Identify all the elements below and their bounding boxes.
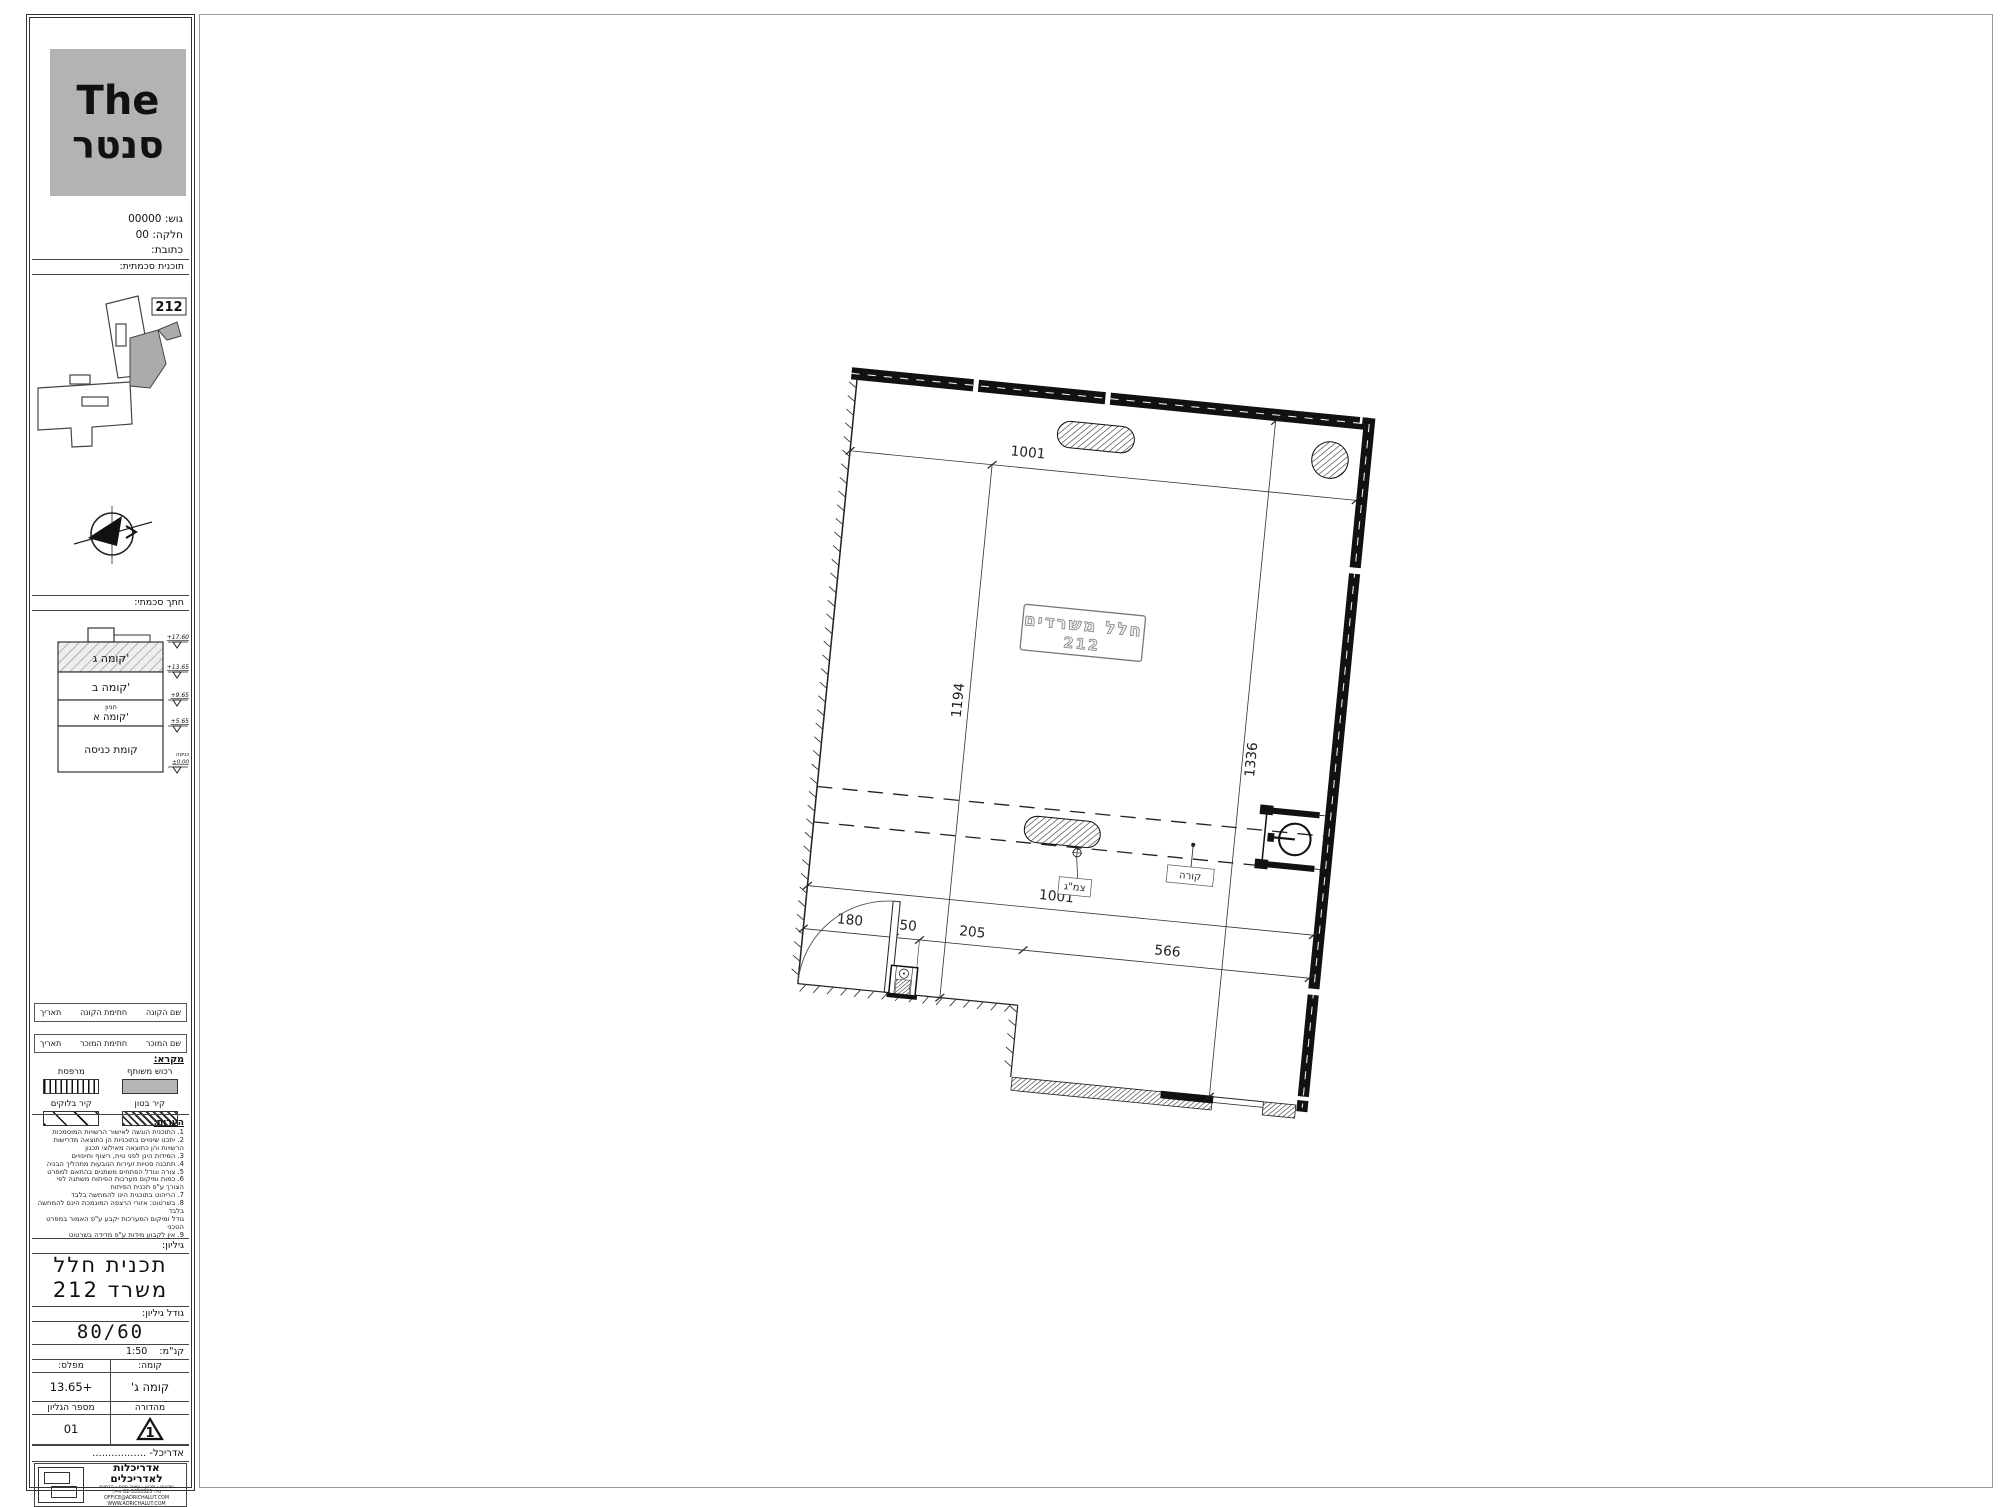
revision-value-row: 1 01 (32, 1414, 189, 1445)
notes-list: 1. התוכנית הוגשה לאישור הרשויות המוסמכות… (33, 1129, 184, 1248)
block-label: גוש: 00000 (30, 212, 183, 228)
level-label: מפלס: (32, 1360, 111, 1372)
keyplan-unit-label: 212 (155, 300, 182, 315)
architect-label: אדריכל- (149, 1448, 184, 1459)
shared-property-swatch (122, 1079, 178, 1094)
floor-level-header-row: קומה: מפלס: (32, 1359, 189, 1373)
sheet-no-label: מספר הגליון (32, 1402, 111, 1414)
buyer-signature-row: שם הקונה חתימת הקונה תאריך (34, 1003, 187, 1022)
floor-plan: חלל משרדים 212 1001 1001 1194 1336 180 5… (0, 0, 2000, 1500)
beam-leader: קורה (1166, 840, 1217, 886)
top-dim-line (850, 451, 1356, 501)
partition-line (940, 465, 992, 998)
entry-floor-label: קומת כניסה (84, 744, 137, 756)
project-logo: The סנטר (50, 49, 186, 196)
firm-name: אדריכלות לאדריכלים (87, 1463, 186, 1485)
logo-line2: סנטר (72, 123, 164, 167)
dim-shaft: 50 (899, 917, 918, 935)
entry-level-label: כניסה (175, 752, 189, 758)
legend-item-shared: רכוש משותף (115, 1067, 186, 1094)
beam-hatch-mid (1023, 815, 1101, 849)
sheet-no-value: 01 (32, 1414, 111, 1444)
elevation-markers: +17.60 +13.65 +9.65 +5.65 כניסה ±0.00 (167, 634, 190, 773)
room-number: 212 (1063, 634, 1101, 655)
legend-label: רכוש משותף (115, 1067, 186, 1077)
sheet-title-line1: תכנית חלל (30, 1253, 191, 1278)
wheelchair-icon (1254, 804, 1325, 874)
door (798, 893, 900, 993)
floor-value: קומה ג' (111, 1372, 189, 1401)
dim-205: 205 (959, 923, 987, 941)
note-line: 8. בשרטוט: אזורי הרצפה המונמכת הינם להמח… (33, 1200, 184, 1216)
sheet-title: תכנית חלל משרד 212 (30, 1253, 191, 1303)
logo-line1: The (77, 79, 160, 123)
level-value: +13.65 (32, 1372, 111, 1401)
firm-logo-icon (38, 1467, 84, 1503)
legend-label: קיר בטון (115, 1099, 186, 1109)
parcel-label: חלקה: 00 (30, 228, 183, 244)
level-5-65: +5.65 (171, 718, 190, 725)
schematic-section: קומה ג' קומה ב' חניון קומה א' קומת כניסה… (30, 612, 193, 842)
top-wall (851, 366, 1369, 431)
step-boundary (1011, 1005, 1018, 1077)
seller-date-label: תאריך (40, 1039, 61, 1048)
dim-door: 180 (836, 911, 864, 929)
bottom-detail-dim-line (803, 929, 1309, 979)
dim-right: 1336 (1242, 742, 1261, 778)
revision-value: 1 (145, 1426, 154, 1441)
seller-signature-row: שם המוכר חתימת המוכר תאריך (34, 1034, 187, 1053)
pipe-label: צמ"ג (1063, 881, 1086, 894)
revision-triangle: 1 (111, 1414, 189, 1444)
beam-label: קורה (1178, 870, 1201, 883)
right-dim-line (1209, 421, 1275, 1096)
schematic-section-header: חתך סכמתי: (32, 595, 189, 611)
sheet-header: גיליון: (32, 1238, 189, 1254)
dim-566: 566 (1154, 942, 1182, 960)
dim-left: 1194 (949, 682, 968, 718)
level-17-60: +17.60 (167, 634, 189, 641)
seller-name-label: שם המוכר (146, 1039, 181, 1048)
sheet-size-value: 80/60 (30, 1321, 191, 1343)
legend-header: מקרא: (30, 1054, 184, 1065)
level-13-65: +13.65 (167, 664, 189, 671)
revision-label: מהדורה (111, 1402, 189, 1414)
sidebar: The סנטר גוש: 00000 חלקה: 00 כתובת: תוכנ… (26, 14, 195, 1491)
balcony-swatch (43, 1079, 99, 1094)
legend-item-balcony: מרפסת (36, 1067, 107, 1094)
floor2-label: קומה ב' (92, 681, 130, 694)
sheet-title-line2: משרד 212 (30, 1278, 191, 1303)
floor1-sublabel: חניון (105, 703, 117, 711)
pipe-leader: צמ"ג (1058, 846, 1095, 897)
architect-row: אדריכל- ................. (32, 1445, 189, 1462)
floor1-label: קומה א' (93, 712, 129, 723)
bottom-wall (1011, 1076, 1296, 1118)
scale-row: קנ"מ: 1:50 (32, 1344, 189, 1360)
dim-top: 1001 (1010, 443, 1046, 462)
round-column (1310, 440, 1350, 480)
project-info: גוש: 00000 חלקה: 00 כתובת: (30, 212, 183, 259)
architect-stamp: אדריכלות לאדריכלים שרטוט - תכנון - עיצוב… (34, 1463, 187, 1507)
room-label: חלל משרדים 212 (1020, 604, 1146, 661)
floor-label: קומה: (111, 1360, 189, 1372)
seller-sig-label: חתימת המוכר (80, 1039, 127, 1048)
entry-level-value: ±0.00 (172, 760, 189, 766)
architect-value: ................. (92, 1448, 146, 1459)
revision-header-row: מהדורה מספר הגליון (32, 1401, 189, 1415)
notes-header: הערות: (30, 1118, 184, 1128)
boundary-ticks (784, 382, 1076, 1067)
legend-label: מרפסת (36, 1067, 107, 1077)
sheet-size-header: גודל גיליון: (32, 1306, 189, 1322)
right-wall (1295, 417, 1377, 1112)
schematic-plan-header: תוכנית סכמתית: (32, 259, 189, 275)
note-line: גודל ומיקום המערכות יקבע ע"פ האמור במפרט… (33, 1216, 184, 1232)
beam-hatch-top (1056, 420, 1135, 454)
floor-level-value-row: קומה ג' +13.65 (32, 1372, 189, 1402)
shaft (886, 965, 919, 1000)
address-label: כתובת: (30, 243, 183, 259)
scale-label: קנ"מ: (159, 1346, 184, 1357)
floor3-label: קומה ג' (93, 652, 130, 665)
buyer-sig-label: חתימת הקונה (80, 1008, 127, 1017)
dim-ticks (786, 376, 1367, 1110)
buyer-name-label: שם הקונה (146, 1008, 181, 1017)
legend-label: קיר בלוקים (36, 1099, 107, 1109)
plan-sheet: { "logo": {"line1": "The", "line2": "סנט… (0, 0, 2000, 1500)
scale-value: 1:50 (126, 1346, 147, 1357)
north-arrow-icon (30, 486, 193, 586)
firm-website: WWW.ADRICHALUT.COM (87, 1502, 186, 1507)
level-9-65: +9.65 (171, 692, 190, 699)
buyer-date-label: תאריך (40, 1008, 61, 1017)
keyplan: 212 (30, 276, 193, 481)
